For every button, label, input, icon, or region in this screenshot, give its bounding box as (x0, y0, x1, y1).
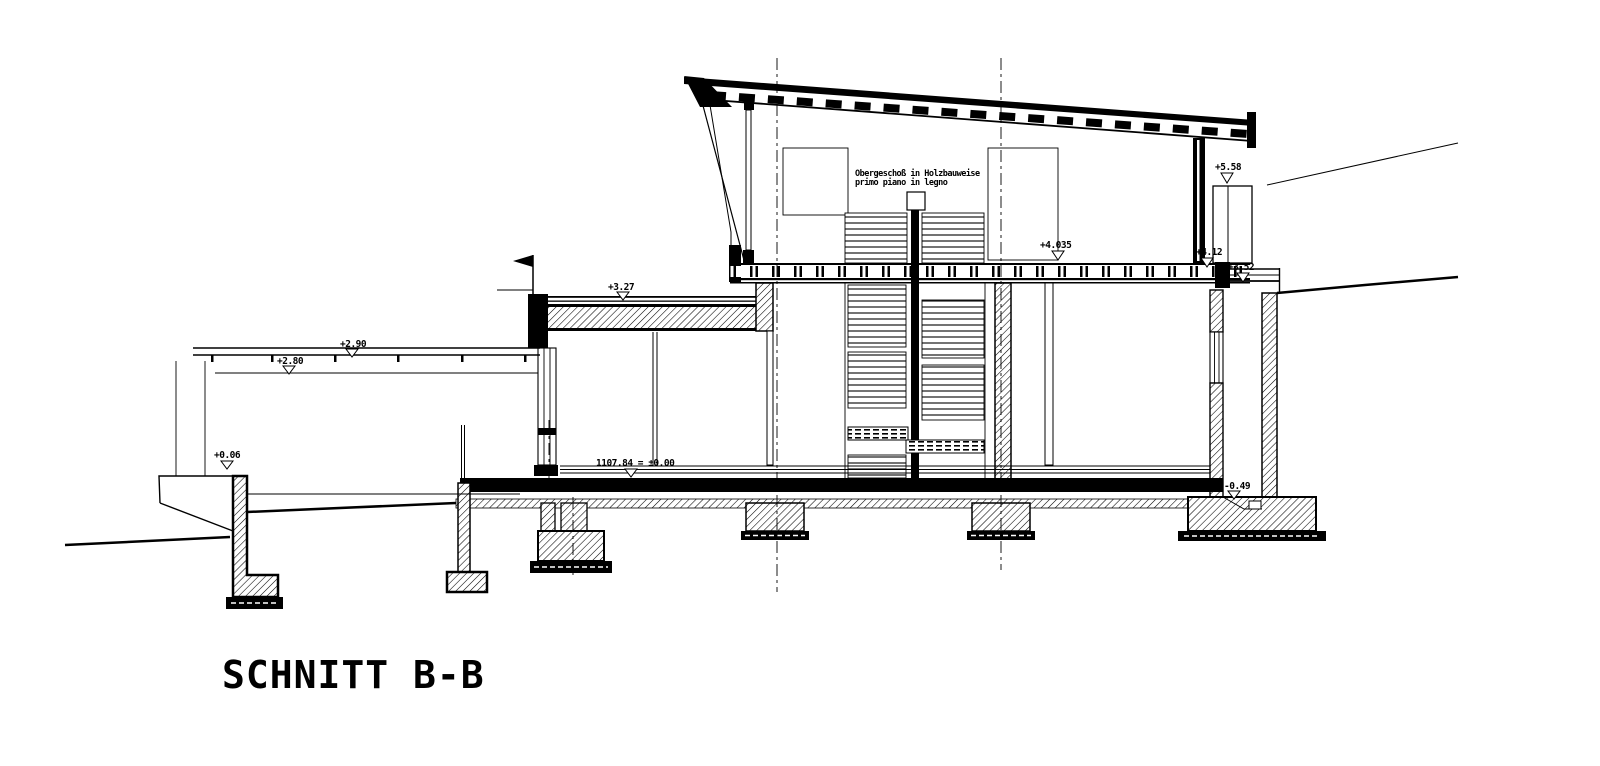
stair-flight (922, 365, 984, 420)
level-marker-558: +5.58 (1215, 162, 1242, 173)
flat-roof-327 (528, 283, 773, 348)
newel-cap (907, 192, 925, 210)
construction-note-it: primo piano in legno (855, 177, 948, 188)
railing-panel (922, 213, 984, 263)
flat-roof-slab (546, 304, 772, 331)
stairwell-wall (767, 331, 773, 465)
right-wall-window (1210, 332, 1223, 383)
level-marker-000: 1107.84 = ±0.00 (596, 458, 675, 469)
column (1045, 283, 1053, 465)
section-drawing-sheet: +5.58 +4.12 +4.035 +3.52 +3.27 +2.90 +2.… (0, 0, 1600, 766)
right-retaining-wall (1262, 293, 1277, 497)
stair-flight (848, 285, 906, 347)
level-marker-412: +4.12 (1196, 247, 1222, 258)
stair-flight (848, 352, 906, 408)
floor-slab (460, 478, 1223, 492)
ground-line-right (1277, 277, 1458, 293)
level-marker-352: +3.52 (1228, 262, 1254, 273)
level-arrow (346, 349, 358, 357)
concrete-wall (995, 283, 1011, 480)
upper-floor-opening-outline (783, 148, 848, 215)
left-wall-head (528, 294, 548, 348)
level-marker-m049: -0.49 (1224, 481, 1251, 492)
ground-line-left (65, 537, 230, 545)
level-marker-327: +3.27 (608, 282, 634, 293)
terrace-edge (159, 476, 233, 503)
stair-flight (922, 300, 984, 358)
ground-line-mid (247, 503, 456, 512)
stair-flight (848, 455, 906, 478)
foundation-wall (458, 483, 470, 572)
drawing-title: SCHNITT B-B (222, 653, 485, 697)
level-arrow (1221, 173, 1233, 183)
level-arrow (1052, 251, 1064, 260)
foundations (447, 425, 1326, 592)
facade-mullion (746, 110, 751, 250)
pier (561, 503, 587, 531)
stair-landing (848, 427, 908, 440)
right-wall-upper (1210, 290, 1223, 332)
roof-right-fascia (1247, 112, 1256, 148)
level-marker-4035: +4.035 (1040, 240, 1072, 251)
stairwell-wall-head (756, 283, 773, 331)
stair-landing (906, 440, 984, 453)
level-marker-280: +2.80 (277, 356, 304, 367)
terrain-line-upper-right (1267, 143, 1458, 185)
level-arrow (221, 461, 233, 469)
level-marker-006: +0.06 (214, 450, 241, 461)
level-marker-290: +2.90 (340, 339, 367, 350)
deck-joists (730, 266, 1250, 277)
staircase (845, 192, 985, 480)
ground-floor-slab (456, 466, 1223, 508)
left-glazing (538, 348, 556, 465)
pier (541, 503, 555, 531)
footing (538, 531, 604, 561)
left-terrace (159, 255, 540, 609)
pad-footing (746, 503, 804, 531)
railing-panel (845, 213, 907, 263)
section-drawing: +5.58 +4.12 +4.035 +3.52 +3.27 +2.90 +2.… (0, 0, 1600, 766)
footing (447, 572, 487, 592)
